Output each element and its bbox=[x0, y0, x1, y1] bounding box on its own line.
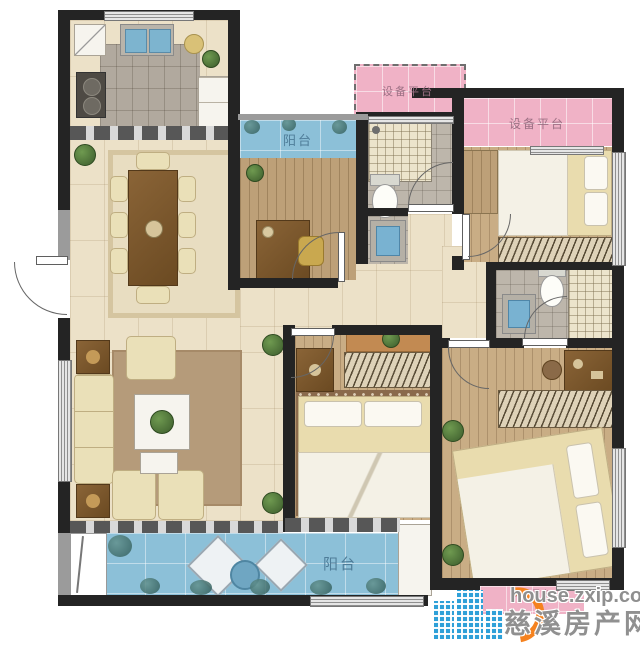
kitchen-stove bbox=[76, 72, 106, 118]
kitchen-tile-area bbox=[100, 44, 200, 128]
window-bedroom1-right bbox=[612, 152, 626, 266]
wall-bedroom1-bath2 bbox=[486, 262, 612, 270]
master-plant-1 bbox=[442, 420, 464, 442]
armchair-bottom-1 bbox=[112, 470, 156, 520]
bedroom2-wardrobe bbox=[344, 352, 438, 388]
dining-chair bbox=[110, 212, 128, 238]
stove-burner-2 bbox=[83, 97, 101, 115]
sink-basin-right bbox=[149, 29, 171, 53]
wall-bedroom2-top bbox=[332, 325, 440, 335]
kitchen-bowl bbox=[184, 34, 204, 54]
side-table-top bbox=[76, 340, 110, 374]
dresser-items-2 bbox=[591, 371, 603, 379]
wall-left-upper bbox=[58, 10, 70, 210]
sliding-door-living-balcony bbox=[70, 521, 283, 533]
kitchen-counter bbox=[198, 76, 230, 128]
dining-chair bbox=[110, 176, 128, 202]
wall-kitchen-right bbox=[228, 10, 240, 122]
bottom-balcony-label: 阳台 bbox=[260, 553, 420, 574]
study-door-leaf bbox=[338, 232, 345, 282]
window-balcony-bottom bbox=[310, 596, 424, 607]
wall-dining-study bbox=[228, 118, 240, 290]
wall-bath1-bottom bbox=[366, 208, 408, 216]
sliding-door-bedroom2-balcony bbox=[285, 518, 400, 532]
master-door-leaf bbox=[448, 340, 490, 348]
wall-left-balcony bbox=[58, 533, 70, 597]
shower-area-bath2 bbox=[568, 266, 614, 342]
rail-top-balcony bbox=[238, 114, 368, 120]
dining-chair bbox=[136, 152, 170, 170]
wall-study-bottom bbox=[238, 278, 338, 288]
bedroom1-closet bbox=[462, 150, 498, 214]
bath2-door-leaf bbox=[522, 338, 568, 346]
coffee-table-plant bbox=[150, 410, 174, 434]
master-bed bbox=[452, 427, 624, 589]
building-block-1 bbox=[434, 601, 454, 639]
study-plant bbox=[246, 164, 264, 182]
window-master-right bbox=[612, 448, 626, 548]
equipment-platform-top-left-label: 设备平台 bbox=[354, 83, 462, 99]
dining-table bbox=[128, 170, 178, 286]
bedroom2-pillow-1 bbox=[304, 401, 362, 427]
balcony-door-leaf bbox=[76, 536, 84, 593]
dining-chair bbox=[178, 176, 196, 202]
window-bedroom1-sill bbox=[530, 146, 604, 155]
kitchen-cabinet bbox=[74, 24, 106, 56]
washbasin bbox=[370, 220, 406, 262]
table-motif bbox=[86, 494, 100, 508]
living-plant-bottom bbox=[262, 492, 284, 514]
dining-chair bbox=[136, 286, 170, 304]
shower-head-bath1 bbox=[372, 126, 380, 134]
wall-left-gray bbox=[58, 210, 70, 260]
stove-burner-1 bbox=[83, 78, 101, 96]
living-plant-top bbox=[262, 334, 284, 356]
study-lamp bbox=[262, 226, 274, 238]
balcony-plant-3 bbox=[190, 580, 212, 595]
wall-bedroom2-master bbox=[430, 325, 442, 588]
master-plant-2 bbox=[442, 544, 464, 566]
master-blanket bbox=[458, 464, 571, 588]
balcony-plant-5 bbox=[310, 580, 332, 595]
armchair-top bbox=[126, 336, 176, 380]
table-motif bbox=[86, 350, 100, 364]
kitchen-plant bbox=[202, 50, 220, 68]
wall-master-top-a bbox=[488, 338, 524, 348]
balcony-door-area bbox=[70, 533, 107, 597]
balcony-plant-4 bbox=[250, 579, 270, 595]
floor-plan: 设备平台 设备平台 设备平台 阳台 阳台 bbox=[0, 0, 640, 640]
entry-door-arc bbox=[14, 262, 67, 315]
bedroom2-blanket bbox=[298, 452, 432, 518]
master-pillow-1 bbox=[566, 442, 600, 499]
balcony-plant-1 bbox=[108, 535, 132, 557]
master-stool bbox=[542, 360, 562, 380]
dining-chair bbox=[178, 248, 196, 274]
dining-chair bbox=[178, 212, 196, 238]
kitchen-sink bbox=[120, 24, 174, 56]
balcony-plant-2 bbox=[140, 578, 160, 594]
dining-plant bbox=[74, 144, 96, 166]
master-dresser bbox=[564, 350, 614, 392]
wall-master-top-b bbox=[566, 338, 612, 348]
window-living-left bbox=[58, 360, 72, 482]
sink-basin-left bbox=[125, 29, 147, 53]
dresser-items bbox=[573, 359, 583, 369]
balcony-plant-6 bbox=[366, 578, 386, 594]
bedroom1-pillow-1 bbox=[584, 156, 608, 190]
dining-chair bbox=[110, 248, 128, 274]
master-wardrobe bbox=[498, 390, 614, 428]
side-table-bottom bbox=[76, 484, 110, 518]
master-pillow-2 bbox=[575, 501, 609, 558]
sliding-door-kitchen bbox=[70, 126, 228, 140]
top-balcony-label: 阳台 bbox=[240, 130, 356, 149]
equipment-platform-top-right-label: 设备平台 bbox=[462, 115, 612, 132]
bedroom2-pillow-2 bbox=[364, 401, 422, 427]
window-bath1-sill bbox=[368, 116, 454, 124]
sofa bbox=[74, 374, 114, 484]
building-block-2 bbox=[457, 590, 483, 639]
armchair-bottom-2 bbox=[158, 470, 204, 520]
bedroom1-wardrobe bbox=[498, 237, 614, 264]
wall-bath2-left bbox=[486, 262, 496, 348]
window-kitchen-top bbox=[104, 11, 194, 21]
table-centerpiece bbox=[145, 220, 163, 238]
bedroom1-pillow-2 bbox=[584, 192, 608, 226]
watermark-brand-name: 慈溪房产网 bbox=[504, 602, 640, 641]
living-stool bbox=[140, 452, 178, 474]
wall-bath1-left bbox=[356, 112, 368, 264]
washbasin-bowl bbox=[376, 226, 400, 256]
watermark: house.zxip.com 慈溪房产网 bbox=[432, 585, 640, 640]
